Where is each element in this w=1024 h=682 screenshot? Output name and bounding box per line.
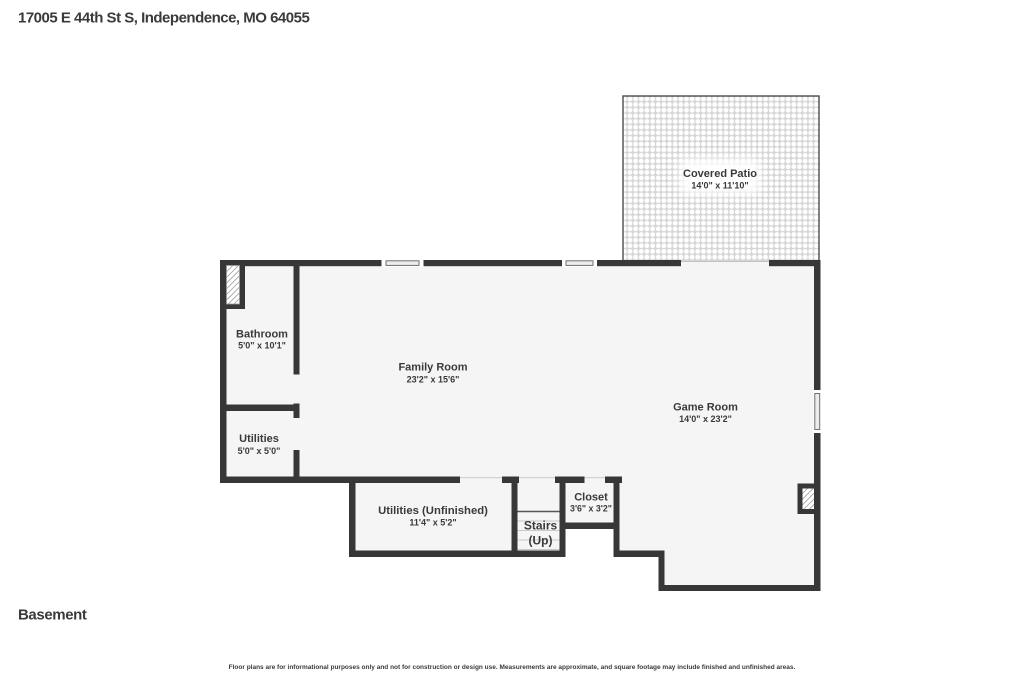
svg-text:Family Room: Family Room [398, 361, 467, 373]
svg-text:Covered Patio: Covered Patio [683, 168, 757, 180]
svg-text:Utilities: Utilities [239, 433, 279, 445]
svg-text:Basement: Basement [18, 607, 87, 624]
svg-text:23'2" x 15'6": 23'2" x 15'6" [407, 374, 460, 384]
svg-text:Bathroom: Bathroom [236, 328, 288, 340]
svg-text:17005 E 44th St S, Independenc: 17005 E 44th St S, Independence, MO 6405… [18, 10, 309, 27]
svg-text:Utilities (Unfinished): Utilities (Unfinished) [378, 505, 488, 517]
svg-text:Floor plans are for informatio: Floor plans are for informational purpos… [229, 664, 796, 671]
svg-text:5'0" x 5'0": 5'0" x 5'0" [238, 446, 281, 456]
svg-text:Game Room: Game Room [673, 402, 738, 414]
svg-text:5'0" x 10'1": 5'0" x 10'1" [238, 341, 286, 351]
svg-text:Closet: Closet [574, 491, 608, 503]
svg-text:11'4" x 5'2": 11'4" x 5'2" [409, 518, 456, 528]
svg-text:Stairs: Stairs [524, 518, 558, 532]
svg-text:3'6" x 3'2": 3'6" x 3'2" [570, 503, 612, 513]
svg-text:14'0" x 23'2": 14'0" x 23'2" [679, 414, 732, 424]
svg-text:14'0" x 11'10": 14'0" x 11'10" [691, 180, 748, 190]
svg-text:(Up): (Up) [529, 534, 553, 548]
